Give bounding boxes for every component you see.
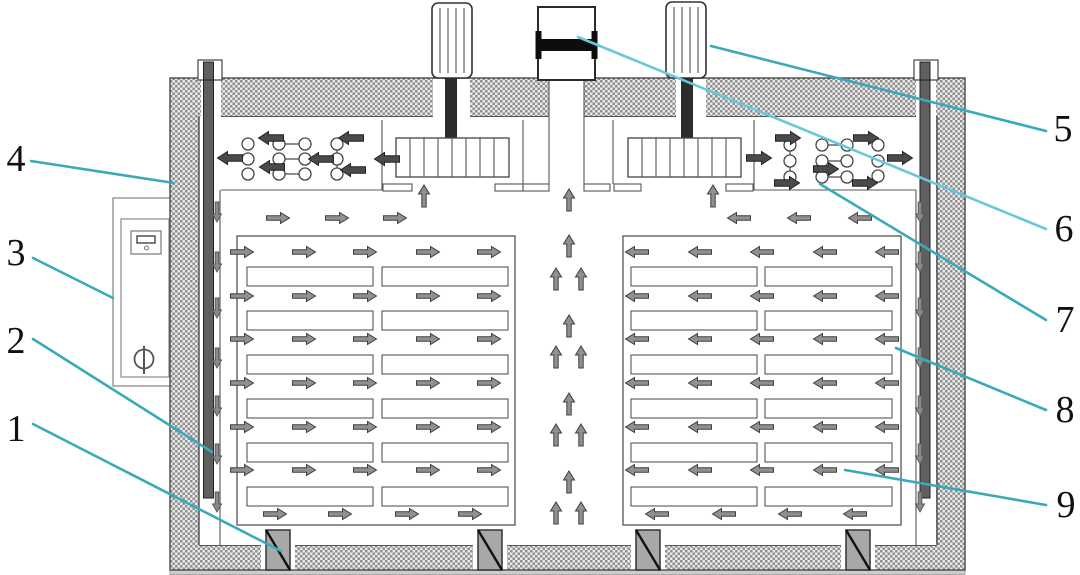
material-tray <box>247 487 508 506</box>
material-tray <box>247 399 508 418</box>
right-tray-cart <box>623 236 901 525</box>
callout-line-4 <box>31 161 174 183</box>
fan-shaft <box>445 78 457 138</box>
callout-label-3: 3 <box>7 232 26 274</box>
callout-label-9: 9 <box>1057 484 1076 526</box>
right-fan-impeller <box>628 138 741 177</box>
floor-insulation <box>199 546 936 571</box>
support-block <box>636 530 660 570</box>
right-wall-rod <box>914 60 938 498</box>
support-block <box>846 530 870 570</box>
left-fan-impeller <box>396 138 509 177</box>
left-fan-motor <box>432 3 472 138</box>
material-tray <box>631 267 892 286</box>
callout-label-1: 1 <box>7 408 26 450</box>
material-tray <box>631 487 892 506</box>
callout-label-5: 5 <box>1054 108 1073 150</box>
callout-line-7 <box>820 184 1046 320</box>
right-fan-motor <box>666 2 706 138</box>
callout-label-2: 2 <box>7 320 26 362</box>
callout-label-4: 4 <box>7 138 26 180</box>
callout-label-6: 6 <box>1055 208 1074 250</box>
callout-line-1 <box>33 424 281 551</box>
upper-return-airflow <box>267 213 872 224</box>
material-tray <box>631 399 892 418</box>
panel-display <box>131 231 161 254</box>
material-tray <box>247 443 508 462</box>
material-tray <box>631 355 892 374</box>
control-panel <box>113 198 177 386</box>
left-heater-bank <box>218 132 400 181</box>
material-tray <box>631 443 892 462</box>
diagram-svg: 1 2 3 4 5 6 7 8 9 <box>0 0 1080 575</box>
material-tray <box>631 311 892 330</box>
left-tray-cart <box>231 236 516 525</box>
material-tray <box>247 311 508 330</box>
material-tray <box>247 355 508 374</box>
drying-oven-diagram: 1 2 3 4 5 6 7 8 9 <box>0 0 1080 575</box>
callout-line-6 <box>578 37 1046 229</box>
support-block <box>478 530 502 570</box>
left-wall-rod <box>198 60 222 498</box>
callout-label-8: 8 <box>1056 389 1075 431</box>
callout-label-7: 7 <box>1056 299 1075 341</box>
fan-shaft <box>681 78 693 138</box>
material-tray <box>247 267 508 286</box>
callout-line-3 <box>33 258 113 298</box>
center-channel-airflow <box>551 189 587 524</box>
